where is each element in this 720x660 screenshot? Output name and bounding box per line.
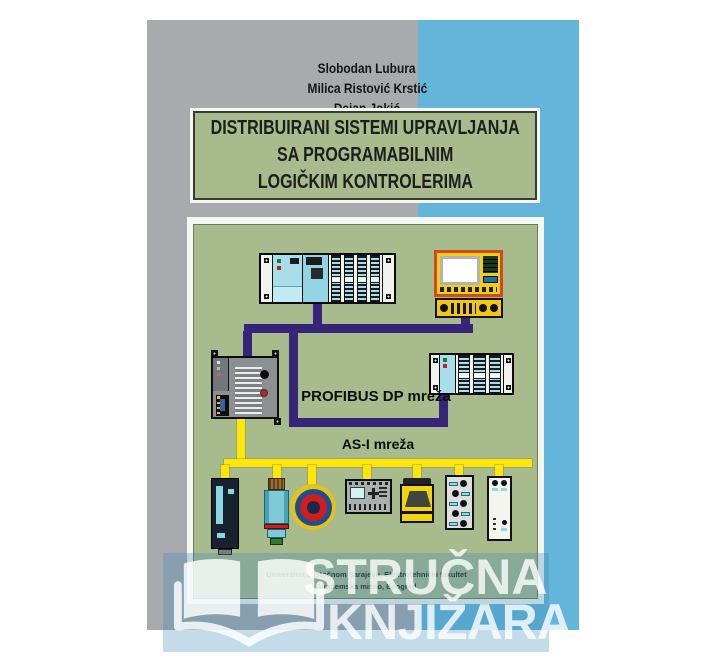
plc-label-area	[235, 367, 262, 414]
asi-drop-line	[273, 465, 281, 479]
keypad-knob	[440, 304, 448, 312]
plc-black-button	[260, 370, 269, 379]
network-diagram: PROFIBUS DP mreža AS-I mreža	[193, 224, 538, 599]
power-supply-module	[273, 255, 303, 302]
watermark-text-line2: KNJIŽARA	[327, 597, 572, 647]
compact-plc-icon	[211, 356, 279, 419]
plc-red-button	[260, 389, 268, 397]
hmi-function-keys	[440, 287, 497, 292]
hmi-operator-panel-icon	[434, 250, 503, 297]
title-box: DISTRIBUIRANI SISTEMI UPRAVLJANJA SA PRO…	[190, 108, 540, 203]
author-name: Slobodan Lubura	[318, 58, 416, 78]
io-modules	[329, 255, 382, 302]
keypad-knob	[479, 304, 487, 312]
profibus-line-segment	[289, 331, 298, 420]
profibus-line-segment	[289, 418, 448, 427]
rack-end-cap	[261, 255, 273, 302]
book-title-line: SA PROGRAMABILNIM	[277, 142, 453, 169]
title-box-inner: DISTRIBUIRANI SISTEMI UPRAVLJANJA SA PRO…	[193, 111, 537, 200]
book-cover: Slobodan Lubura Milica Ristović Krstić D…	[147, 20, 579, 630]
cpu-module	[303, 255, 329, 302]
asi-drop-line	[413, 465, 421, 479]
asi-io-module-icon	[445, 475, 474, 530]
keypad-knob	[490, 304, 498, 312]
valve-terminal-icon	[487, 476, 512, 541]
hmi-key-block	[483, 256, 498, 273]
hmi-keypad-icon	[435, 298, 503, 318]
profibus-line-segment	[243, 331, 252, 357]
profibus-line-segment	[313, 304, 322, 326]
servo-drive-icon	[211, 478, 239, 549]
hmi-indicator	[483, 276, 498, 283]
profibus-line-segment	[244, 324, 473, 333]
mounting-screw	[211, 350, 218, 357]
asi-drop-line	[308, 465, 316, 485]
book-cover-page: Slobodan Lubura Milica Ristović Krstić D…	[0, 0, 720, 660]
asi-drop-line	[221, 465, 229, 479]
rack-end-cap	[503, 355, 512, 393]
asi-bus-line	[224, 459, 532, 467]
mounting-screw	[274, 418, 281, 425]
keypad-keys	[451, 303, 476, 314]
mounting-screw	[272, 350, 279, 357]
asi-drop-line	[363, 465, 371, 480]
plc-rack-master-icon	[259, 253, 396, 304]
rack-end-cap	[382, 255, 394, 302]
emergency-stop-button-icon	[290, 484, 336, 530]
network-diagram-panel: PROFIBUS DP mreža AS-I mreža	[187, 217, 544, 604]
asi-network-label: AS-I mreža	[308, 436, 448, 452]
plc-expansion-module	[213, 358, 229, 391]
light-sensor-unit-icon	[400, 478, 434, 523]
hmi-screen	[440, 256, 480, 285]
asi-line-segment	[237, 418, 245, 460]
author-name: Milica Ristović Krstić	[307, 78, 427, 98]
db9-connector	[216, 395, 229, 416]
profibus-line-segment	[461, 318, 470, 330]
book-title-line: LOGIČKIM KONTROLERIMA	[257, 169, 472, 196]
proximity-sensor-icon	[264, 478, 289, 546]
logic-module-icon	[345, 479, 392, 514]
book-title-line: DISTRIBUIRANI SISTEMI UPRAVLJANJA	[210, 115, 519, 142]
profibus-network-label: PROFIBUS DP mreža	[286, 388, 466, 405]
